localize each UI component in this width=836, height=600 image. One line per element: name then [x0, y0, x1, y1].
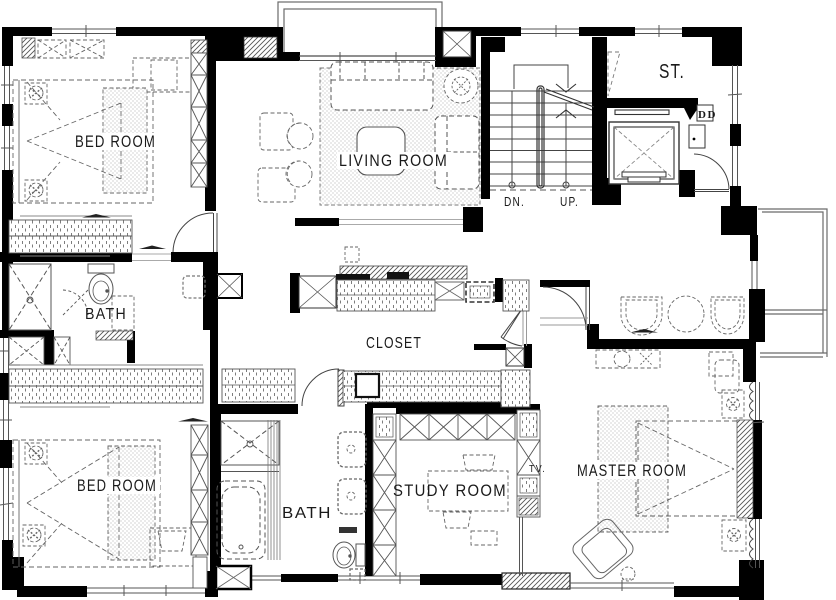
svg-text:MASTER ROOM: MASTER ROOM	[577, 461, 687, 480]
svg-text:DD: DD	[698, 109, 717, 121]
svg-text:CLOSET: CLOSET	[366, 335, 422, 352]
svg-text:BATH: BATH	[282, 505, 332, 522]
svg-text:BED ROOM: BED ROOM	[77, 476, 157, 495]
svg-text:BED ROOM: BED ROOM	[75, 132, 156, 151]
svg-text:STUDY ROOM: STUDY ROOM	[393, 481, 507, 500]
svg-text:BATH: BATH	[85, 306, 127, 323]
svg-text:ST.: ST.	[659, 61, 685, 83]
svg-text:UP.: UP.	[560, 194, 579, 209]
svg-text:TV.: TV.	[529, 464, 546, 475]
svg-text:LIVING ROOM: LIVING ROOM	[339, 151, 448, 170]
svg-text:DN.: DN.	[504, 194, 525, 209]
